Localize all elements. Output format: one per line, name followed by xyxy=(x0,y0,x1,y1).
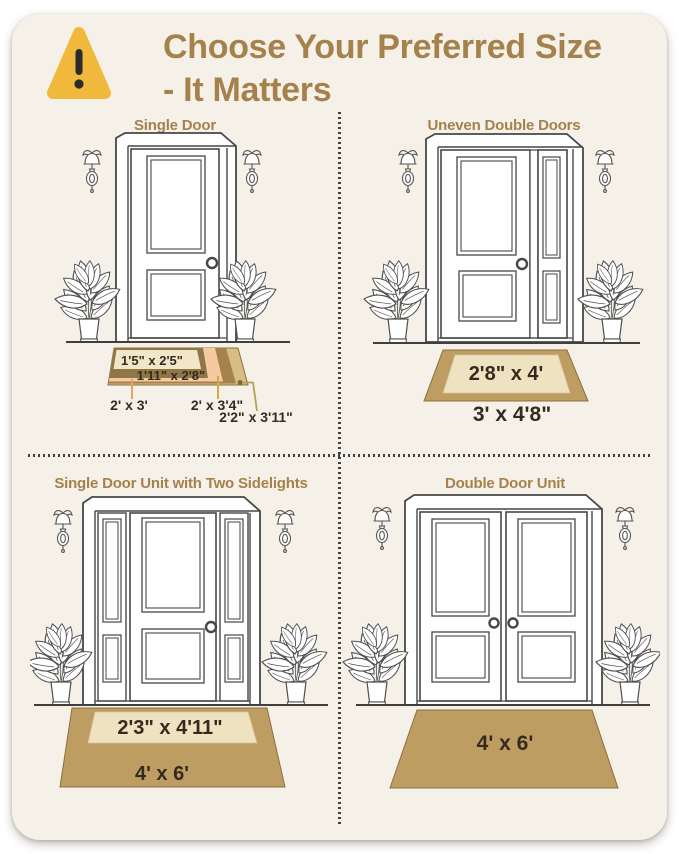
door-illustration xyxy=(83,497,260,705)
page-title: Choose Your Preferred Size - It Matters xyxy=(163,26,602,112)
scene-single-door-two-sidelights: Single Door Unit with Two Sidelights xyxy=(30,455,350,835)
quadrant-title: Single Door xyxy=(134,117,216,134)
mat-size-label: 4' x 6' xyxy=(477,732,534,755)
door-illustration xyxy=(116,133,236,342)
mat-size-label: 2'2" x 3'11" xyxy=(219,409,293,425)
scene-single-door: Single Door 1'5" x 2'5" 1'11" x 2'8" xyxy=(30,108,350,440)
wall-sconce-icon-right xyxy=(616,508,634,550)
leader-dot xyxy=(238,380,243,385)
door-knob xyxy=(207,258,217,268)
mat-size-label: 2'8" x 4' xyxy=(469,363,544,385)
mat-size-label: 1'11" x 2'8" xyxy=(137,368,205,383)
scene-double-door-unit: Double Door Unit 4' x 6' xyxy=(340,455,660,835)
potted-plant-icon-right xyxy=(261,623,330,706)
potted-plant-icon-left xyxy=(342,623,411,706)
door-knob xyxy=(206,622,216,632)
potted-plant-icon-left xyxy=(363,260,432,343)
title-line-2: - It Matters xyxy=(163,71,331,109)
quadrant-title: Double Door Unit xyxy=(445,475,565,492)
wall-sconce-icon-left xyxy=(83,151,101,193)
mat-size-label: 1'5" x 2'5" xyxy=(121,353,183,368)
scene-uneven-double-doors: Uneven Double Doors 2'8" x 4' xyxy=(340,108,660,440)
door-illustration xyxy=(426,134,583,342)
wall-sconce-icon-right xyxy=(243,151,261,193)
doormat: 4' x 6' xyxy=(390,710,618,788)
wall-sconce-icon-right xyxy=(596,151,614,193)
door-illustration xyxy=(405,495,602,705)
wall-sconce-icon-left xyxy=(399,151,417,193)
door-knob xyxy=(517,259,527,269)
quadrant-title: Uneven Double Doors xyxy=(428,117,581,134)
doormat-stack: 1'5" x 2'5" 1'11" x 2'8" 2' x 3' 2' x 3'… xyxy=(108,348,293,425)
potted-plant-icon-right xyxy=(577,260,646,343)
door-knob xyxy=(490,619,499,628)
doormat: 2'3" x 4'11" 4' x 6' xyxy=(60,708,285,787)
infographic-panel: Choose Your Preferred Size - It Matters … xyxy=(12,14,667,840)
mat-size-label: 2'3" x 4'11" xyxy=(117,717,222,739)
warning-triangle-icon xyxy=(47,22,111,106)
title-line-1: Choose Your Preferred Size xyxy=(163,28,602,66)
mat-size-label: 3' x 4'8" xyxy=(473,403,551,426)
leader-line xyxy=(242,383,257,412)
doormat: 2'8" x 4' 3' x 4'8" xyxy=(424,350,588,426)
quadrant-title: Single Door Unit with Two Sidelights xyxy=(54,475,307,492)
door-knob xyxy=(509,619,518,628)
mat-size-label: 2' x 3' xyxy=(110,397,148,413)
potted-plant-icon-left xyxy=(54,260,123,343)
wall-sconce-icon-right xyxy=(276,511,294,553)
wall-sconce-icon-left xyxy=(54,511,72,553)
wall-sconce-icon-left xyxy=(373,508,391,550)
potted-plant-icon-right xyxy=(595,623,660,706)
mat-size-label: 4' x 6' xyxy=(135,763,189,785)
